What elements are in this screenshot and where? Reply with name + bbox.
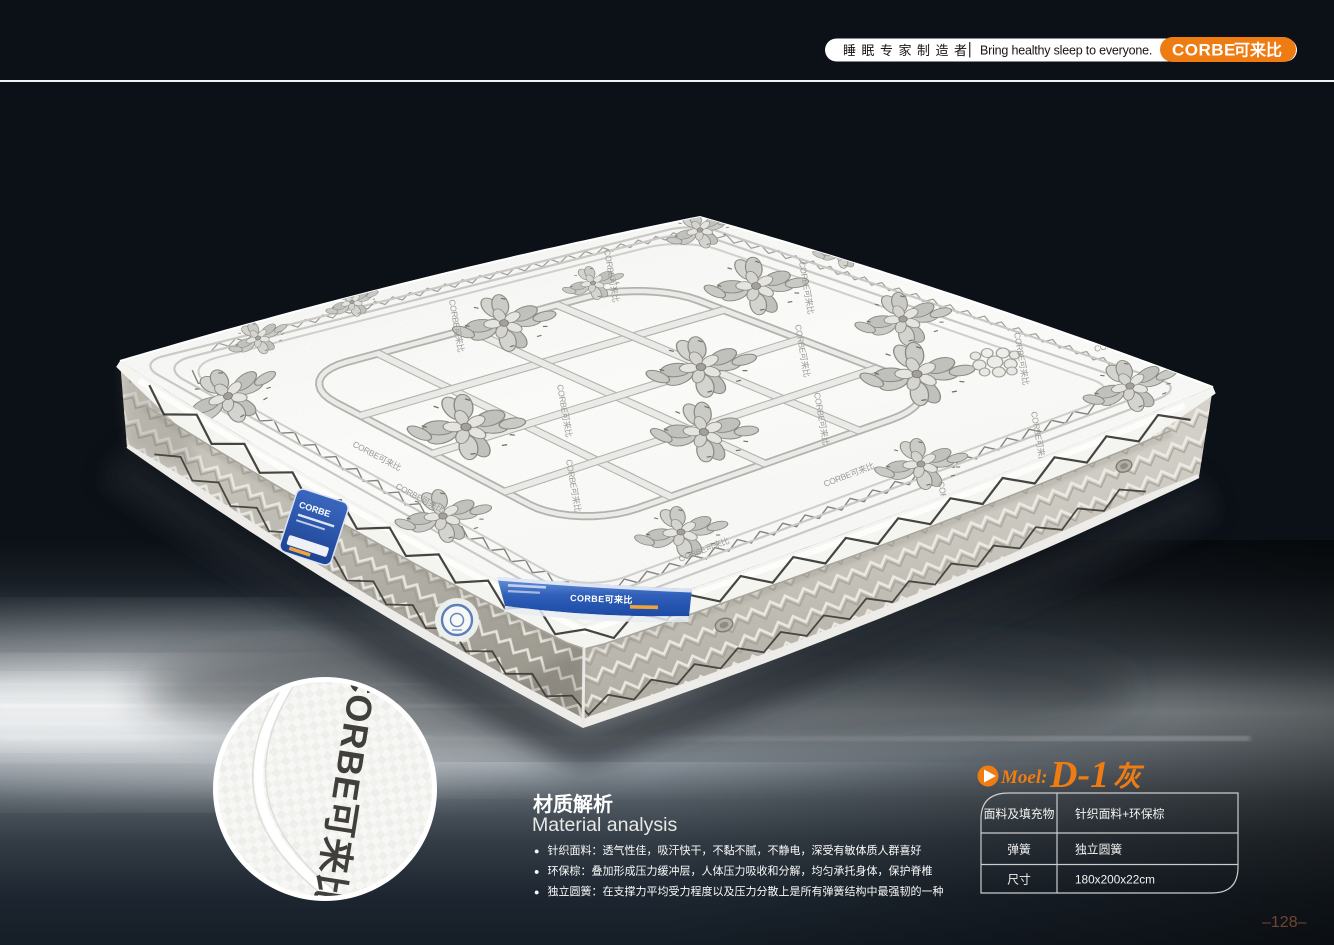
svg-text:● 针织面料：透气性佳，吸汗快干，不黏不腻，不静电，深受有敏: ● 针织面料：透气性佳，吸汗快干，不黏不腻，不静电，深受有敏体质人群喜好 <box>534 843 922 857</box>
svg-text:Moel:: Moel: <box>1000 767 1047 788</box>
svg-text:Material analysis: Material analysis <box>532 814 677 836</box>
svg-text:针织面料+环保棕: 针织面料+环保棕 <box>1075 807 1165 821</box>
svg-text:CORBE: CORBE <box>1172 41 1236 60</box>
svg-text:Bring healthy sleep to everyon: Bring healthy sleep to everyone. <box>980 44 1152 58</box>
svg-text:灰: 灰 <box>1113 761 1145 792</box>
svg-text:弹簧: 弹簧 <box>1007 843 1031 857</box>
svg-text:面料及填充物: 面料及填充物 <box>984 807 1055 821</box>
svg-text:CORBE可来比: CORBE可来比 <box>570 592 633 605</box>
svg-text:D-1: D-1 <box>1049 754 1109 796</box>
svg-text:尺寸: 尺寸 <box>1007 873 1031 887</box>
svg-text:睡眠专家制造者: 睡眠专家制造者 <box>843 43 973 58</box>
svg-text:–128–: –128– <box>1262 914 1307 931</box>
svg-text:● 环保棕：叠加形成压力缓冲层，人体压力吸收和分解，均匀承托: ● 环保棕：叠加形成压力缓冲层，人体压力吸收和分解，均匀承托身体，保护脊椎 <box>534 864 933 878</box>
svg-text:材质解析: 材质解析 <box>533 792 613 816</box>
svg-text:独立圆簧: 独立圆簧 <box>1075 843 1122 857</box>
svg-text:180x200x22cm: 180x200x22cm <box>1075 873 1155 887</box>
svg-text:● 独立圆簧：在支撑力平均受力程度以及压力分散上是所有弹簧结: ● 独立圆簧：在支撑力平均受力程度以及压力分散上是所有弹簧结构中最强韧的一种 <box>534 884 944 898</box>
svg-text:可来比: 可来比 <box>1234 41 1282 60</box>
